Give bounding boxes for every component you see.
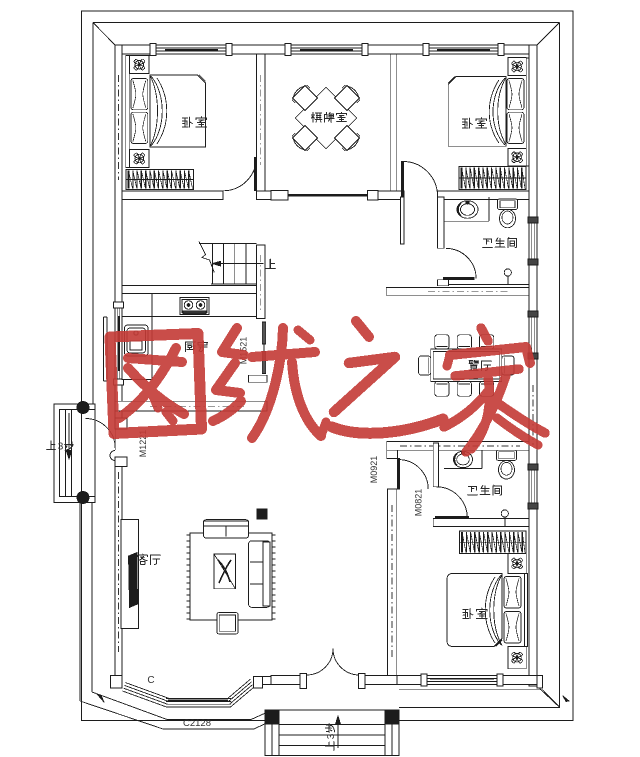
svg-text:M0821: M0821 (413, 489, 423, 517)
svg-text:3: 3 (58, 442, 64, 453)
svg-text:C: C (147, 675, 154, 686)
svg-text:3: 3 (326, 733, 337, 739)
svg-text:C2128: C2128 (183, 718, 211, 729)
svg-text:M0921: M0921 (369, 456, 379, 484)
